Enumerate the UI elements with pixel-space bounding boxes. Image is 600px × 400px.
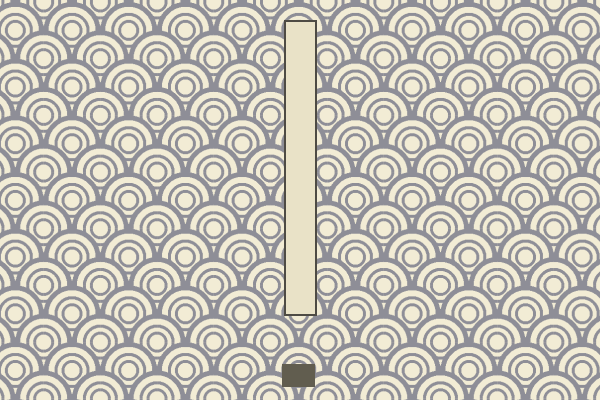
target-block xyxy=(282,364,315,387)
game-viewport[interactable] xyxy=(0,0,600,400)
pillar xyxy=(284,20,317,316)
